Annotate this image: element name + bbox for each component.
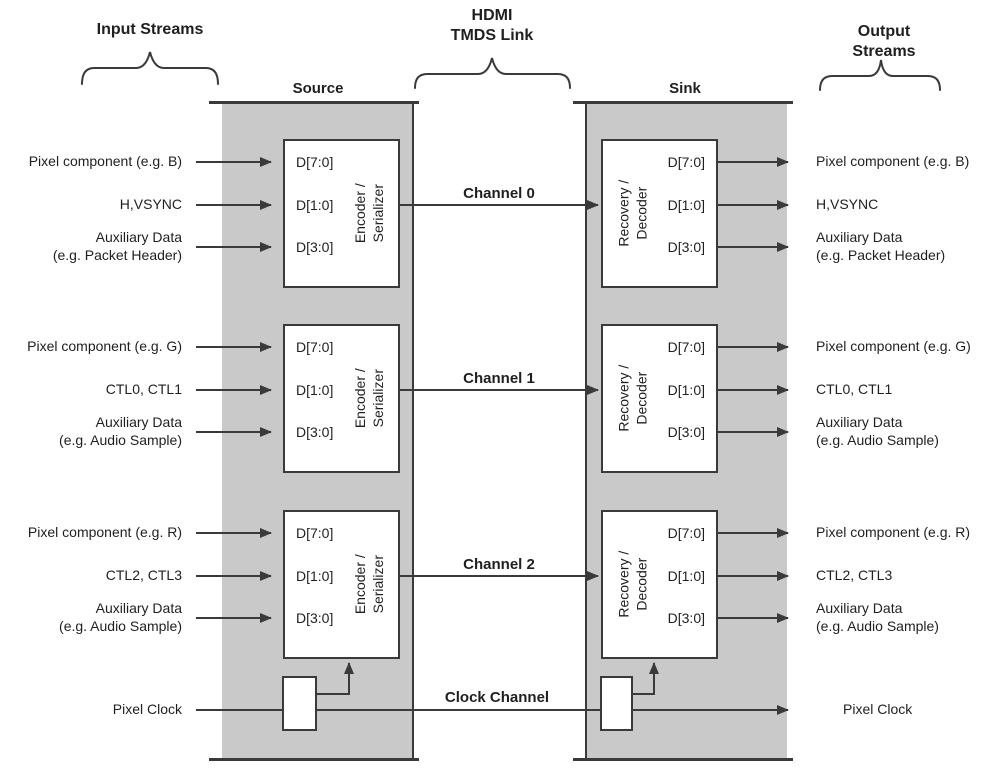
port-label: D[7:0] [668, 525, 705, 541]
encoder-serializer-box-2: D[7:0] D[1:0] D[3:0] Encoder / Serialize… [283, 510, 400, 659]
encoder-serializer-label: Encoder / Serializer [350, 369, 386, 429]
output-label-ch1-aux: Auxiliary Data (e.g. Audio Sample) [816, 414, 939, 450]
port-label: D[3:0] [668, 239, 705, 255]
encoder-vlabel-wrap: Encoder / Serializer [344, 141, 394, 286]
channel-2-label: Channel 2 [463, 556, 535, 573]
decoder-vlabel-wrap: Recovery / Decoder [608, 326, 658, 471]
recovery-decoder-box-2: D[7:0] D[1:0] D[3:0] Recovery / Decoder [601, 510, 718, 659]
hdmi-tmds-link-diagram: Input Streams HDMI TMDS Link Output Stre… [0, 0, 1002, 779]
input-label-ch0-aux: Auxiliary Data (e.g. Packet Header) [53, 229, 182, 265]
recovery-decoder-box-0: D[7:0] D[1:0] D[3:0] Recovery / Decoder [601, 139, 718, 288]
port-label: D[1:0] [296, 197, 333, 213]
output-label-ch0-sync: H,VSYNC [816, 196, 878, 214]
source-label: Source [293, 80, 344, 97]
input-label-ch0-sync: H,VSYNC [120, 196, 182, 214]
encoder-serializer-box-1: D[7:0] D[1:0] D[3:0] Encoder / Serialize… [283, 324, 400, 473]
recovery-decoder-label: Recovery / Decoder [614, 180, 650, 247]
input-label-ch2-ctl: CTL2, CTL3 [106, 567, 182, 585]
port-label: D[3:0] [296, 239, 333, 255]
output-label-ch1-ctl: CTL0, CTL1 [816, 381, 892, 399]
port-label: D[3:0] [668, 610, 705, 626]
output-label-ch0-pixel: Pixel component (e.g. B) [816, 153, 969, 171]
port-label: D[7:0] [296, 154, 333, 170]
port-label: D[1:0] [296, 568, 333, 584]
output-label-ch2-pixel: Pixel component (e.g. R) [816, 524, 970, 542]
sink-label: Sink [669, 80, 701, 97]
recovery-decoder-label: Recovery / Decoder [614, 551, 650, 618]
encoder-serializer-label: Encoder / Serializer [350, 555, 386, 615]
clock-box-sink [601, 677, 632, 730]
port-label: D[7:0] [296, 525, 333, 541]
hdmi-link-brace [415, 58, 570, 88]
encoder-vlabel-wrap: Encoder / Serializer [344, 512, 394, 657]
decoder-vlabel-wrap: Recovery / Decoder [608, 512, 658, 657]
input-label-ch2-pixel: Pixel component (e.g. R) [28, 524, 182, 542]
input-label-ch2-aux: Auxiliary Data (e.g. Audio Sample) [59, 600, 182, 636]
pixel-clock-input-label: Pixel Clock [113, 701, 182, 719]
decoder-vlabel-wrap: Recovery / Decoder [608, 141, 658, 286]
clock-box-source [283, 677, 316, 730]
output-streams-title: Output Streams [825, 22, 943, 62]
recovery-decoder-label: Recovery / Decoder [614, 365, 650, 432]
output-streams-brace [820, 60, 940, 90]
hdmi-tmds-link-title: HDMI TMDS Link [451, 6, 534, 46]
output-label-ch2-ctl: CTL2, CTL3 [816, 567, 892, 585]
input-label-ch1-ctl: CTL0, CTL1 [106, 381, 182, 399]
pixel-clock-output-label: Pixel Clock [843, 701, 912, 719]
port-label: D[7:0] [668, 154, 705, 170]
port-label: D[1:0] [668, 197, 705, 213]
output-label-ch1-pixel: Pixel component (e.g. G) [816, 338, 971, 356]
port-label: D[3:0] [296, 610, 333, 626]
port-label: D[1:0] [668, 382, 705, 398]
port-label: D[1:0] [668, 568, 705, 584]
encoder-serializer-box-0: D[7:0] D[1:0] D[3:0] Encoder / Serialize… [283, 139, 400, 288]
output-label-ch0-aux: Auxiliary Data (e.g. Packet Header) [816, 229, 945, 265]
port-label: D[3:0] [296, 424, 333, 440]
input-streams-brace [82, 52, 218, 84]
channel-0-label: Channel 0 [463, 185, 535, 202]
input-label-ch0-pixel: Pixel component (e.g. B) [29, 153, 182, 171]
port-label: D[1:0] [296, 382, 333, 398]
port-label: D[7:0] [668, 339, 705, 355]
output-label-ch2-aux: Auxiliary Data (e.g. Audio Sample) [816, 600, 939, 636]
channel-1-label: Channel 1 [463, 370, 535, 387]
port-label: D[7:0] [296, 339, 333, 355]
clock-channel-label: Clock Channel [445, 689, 549, 706]
recovery-decoder-box-1: D[7:0] D[1:0] D[3:0] Recovery / Decoder [601, 324, 718, 473]
port-label: D[3:0] [668, 424, 705, 440]
encoder-vlabel-wrap: Encoder / Serializer [344, 326, 394, 471]
input-streams-title: Input Streams [97, 20, 204, 40]
input-label-ch1-aux: Auxiliary Data (e.g. Audio Sample) [59, 414, 182, 450]
encoder-serializer-label: Encoder / Serializer [350, 184, 386, 244]
clock-elbow-sink [632, 663, 654, 694]
input-label-ch1-pixel: Pixel component (e.g. G) [27, 338, 182, 356]
clock-elbow-source [316, 663, 349, 694]
